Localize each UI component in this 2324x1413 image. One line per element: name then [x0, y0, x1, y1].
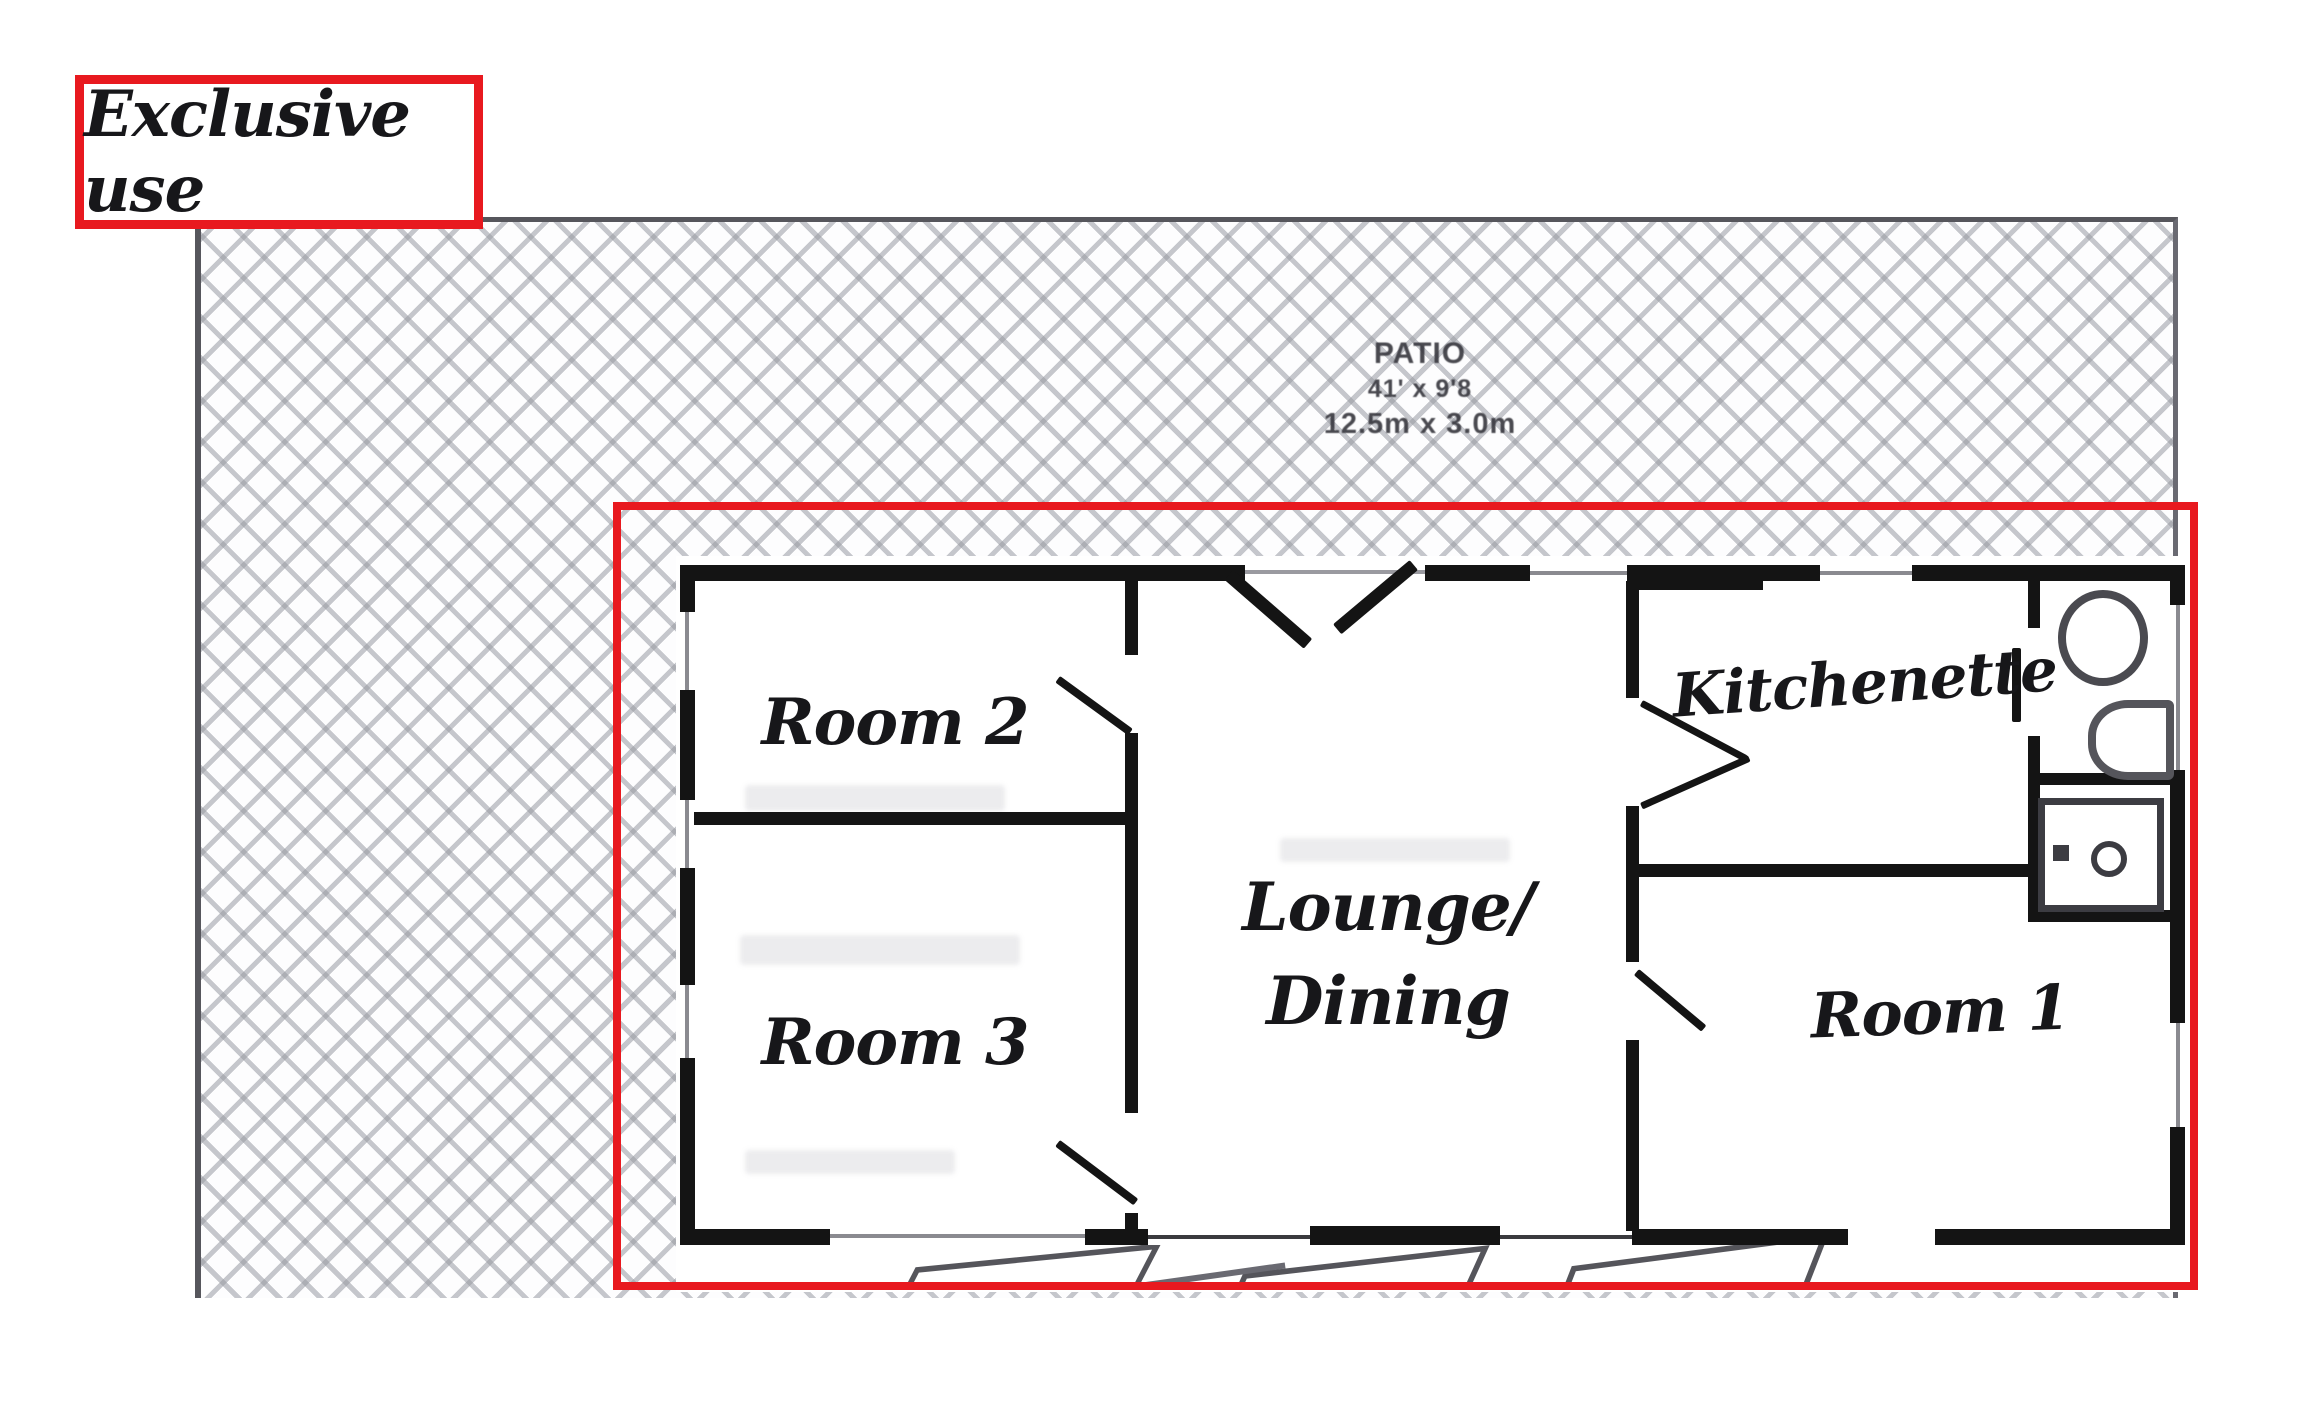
patio-size-metric: 12.5m x 3.0m — [1280, 406, 1560, 442]
exclusive-use-box: Exclusive use — [75, 75, 483, 229]
exclusive-use-label: Exclusive use — [84, 77, 474, 227]
unit-outline — [613, 502, 2198, 1290]
patio-size-imperial: 41' x 9'8 — [1280, 372, 1560, 406]
floor-plan-page: Exclusive use PATIO 41' x 9'8 12.5m x 3.… — [0, 0, 2324, 1413]
patio-title: PATIO — [1280, 336, 1560, 372]
patio-label-block: PATIO 41' x 9'8 12.5m x 3.0m — [1280, 336, 1560, 442]
